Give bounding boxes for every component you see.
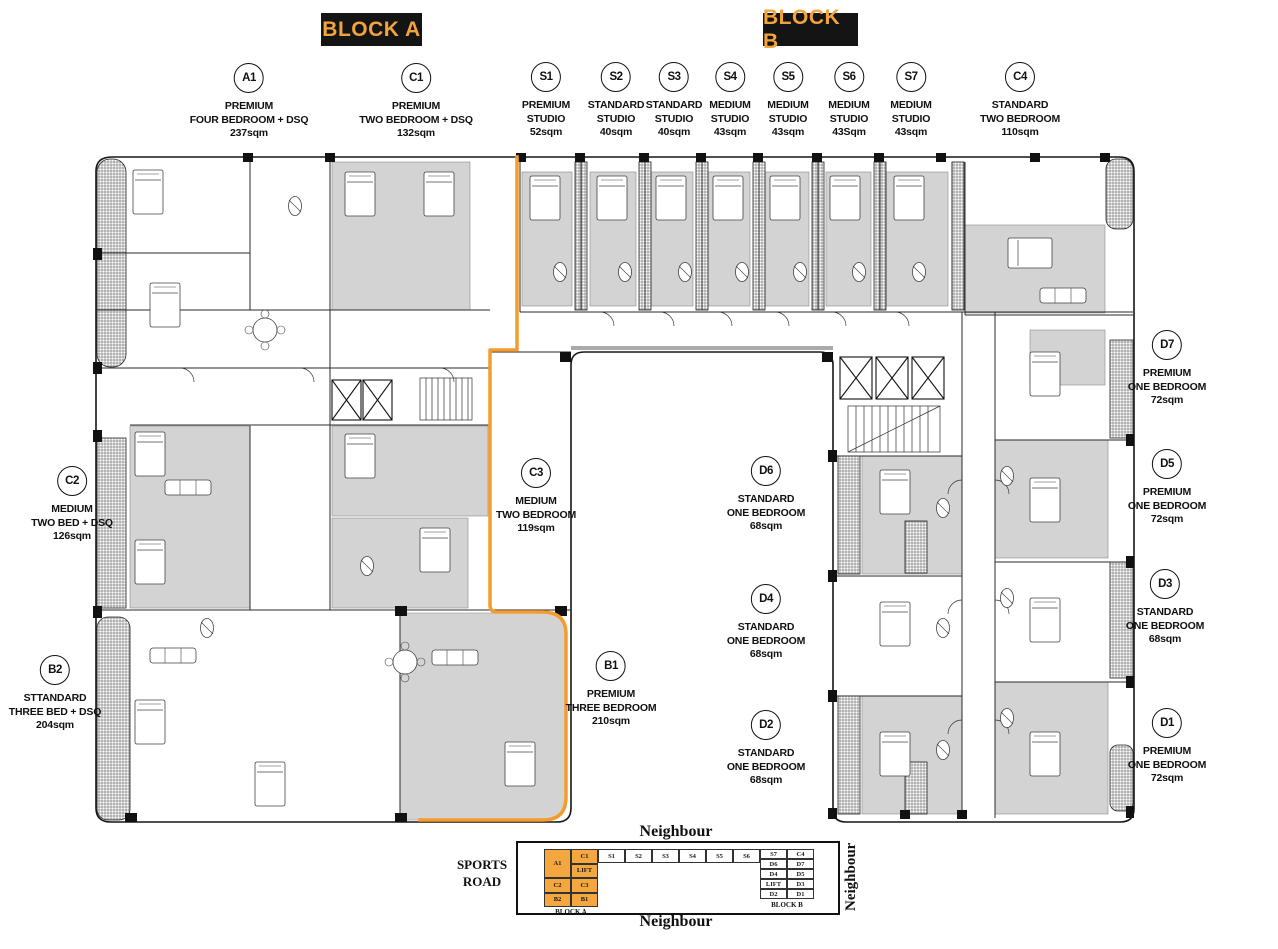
unit-area: 68sqm: [727, 774, 805, 788]
unit-code: B1: [604, 660, 618, 672]
unit-code-badge: S5: [773, 62, 803, 92]
key-cell-lift-a: LIFT: [571, 864, 598, 879]
key-cell-c1: C1: [571, 849, 598, 864]
unit-line: STANDARD: [646, 99, 703, 113]
unit-callout-s3: S3 STANDARDSTUDIO40sqm: [646, 62, 703, 140]
key-plan: A1 C1 LIFT C2 C3 B2 B1 S1 S2 S3 S4 S5 S6…: [516, 841, 840, 915]
unit-code-badge: B1: [596, 651, 626, 681]
unit-callout-c2: C2 MEDIUMTWO BED + DSQ126sqm: [31, 466, 113, 544]
unit-code: D5: [1160, 458, 1174, 470]
unit-line: STUDIO: [890, 113, 931, 127]
unit-description: PREMIUMONE BEDROOM72sqm: [1128, 367, 1206, 408]
unit-line: PREMIUM: [190, 100, 309, 114]
block-b-header: BLOCK B: [763, 13, 858, 46]
unit-area: 43Sqm: [828, 126, 869, 140]
key-cell-b2: B2: [544, 893, 571, 908]
unit-callout-d4: D4 STANDARDONE BEDROOM68sqm: [727, 584, 805, 662]
unit-area: 72sqm: [1128, 394, 1206, 408]
unit-line: TWO BED + DSQ: [31, 517, 113, 531]
unit-line: MEDIUM: [709, 99, 750, 113]
unit-code-badge: B2: [40, 655, 70, 685]
neighbour-label-bottom: Neighbour: [516, 913, 836, 931]
unit-description: PREMIUMFOUR BEDROOM + DSQ237sqm: [190, 100, 309, 141]
key-plan-block-a-grid: A1 C1 LIFT C2 C3 B2 B1: [544, 849, 598, 907]
unit-area: 68sqm: [1126, 633, 1204, 647]
unit-line: ONE BEDROOM: [1128, 381, 1206, 395]
key-cell-d7: D7: [787, 859, 814, 869]
unit-line: MEDIUM: [890, 99, 931, 113]
unit-line: STUDIO: [646, 113, 703, 127]
unit-description: STANDARDONE BEDROOM68sqm: [727, 621, 805, 662]
unit-line: PREMIUM: [1128, 745, 1206, 759]
sports-road-label: SPORTS ROAD: [446, 856, 518, 890]
unit-callout-b1: B1 PREMIUMTHREE BEDROOM210sqm: [566, 651, 657, 729]
unit-line: STANDARD: [727, 747, 805, 761]
key-cell-s6: S6: [733, 849, 760, 863]
unit-description: MEDIUMTWO BEDROOM119sqm: [496, 495, 576, 536]
unit-description: MEDIUMSTUDIO43sqm: [767, 99, 808, 140]
unit-line: STUDIO: [828, 113, 869, 127]
floor-plan-drawing: [0, 0, 1278, 949]
unit-line: PREMIUM: [1128, 367, 1206, 381]
unit-code: S5: [781, 71, 794, 83]
unit-area: 237sqm: [190, 127, 309, 141]
unit-callout-a1: A1 PREMIUMFOUR BEDROOM + DSQ237sqm: [190, 63, 309, 141]
unit-code: D1: [1160, 717, 1174, 729]
key-cell-s3: S3: [652, 849, 679, 863]
unit-description: STANDARDTWO BEDROOM110sqm: [980, 99, 1060, 140]
unit-line: TWO BEDROOM + DSQ: [359, 114, 473, 128]
unit-callout-c3: C3 MEDIUMTWO BEDROOM119sqm: [496, 458, 576, 536]
unit-code: S1: [539, 71, 552, 83]
unit-line: PREMIUM: [1128, 486, 1206, 500]
unit-area: 119sqm: [496, 522, 576, 536]
floor-plan-poster: BLOCK A BLOCK B A1 PREMIUMFOUR BEDROOM +…: [0, 0, 1278, 949]
unit-code: D7: [1160, 339, 1174, 351]
unit-area: 132sqm: [359, 127, 473, 141]
unit-line: STANDARD: [980, 99, 1060, 113]
unit-area: 110sqm: [980, 126, 1060, 140]
unit-code: C2: [65, 475, 79, 487]
unit-description: PREMIUMTWO BEDROOM + DSQ132sqm: [359, 100, 473, 141]
unit-callout-s1: S1 PREMIUMSTUDIO52sqm: [522, 62, 570, 140]
unit-code: C3: [529, 467, 543, 479]
unit-line: ONE BEDROOM: [727, 635, 805, 649]
key-cell-c3: C3: [571, 878, 598, 893]
unit-code-badge: D4: [751, 584, 781, 614]
neighbour-label-top: Neighbour: [516, 823, 836, 841]
unit-line: MEDIUM: [828, 99, 869, 113]
unit-description: STANDARDONE BEDROOM68sqm: [727, 747, 805, 788]
unit-line: ONE BEDROOM: [1128, 500, 1206, 514]
key-cell-s5: S5: [706, 849, 733, 863]
sports-road-line: ROAD: [446, 873, 518, 890]
key-cell-b1: B1: [571, 893, 598, 908]
unit-description: STANDARDSTUDIO40sqm: [588, 99, 645, 140]
unit-line: THREE BEDROOM: [566, 702, 657, 716]
unit-line: STANDARD: [727, 493, 805, 507]
unit-code-badge: S7: [896, 62, 926, 92]
unit-callout-s6: S6 MEDIUMSTUDIO43Sqm: [828, 62, 869, 140]
unit-code: S3: [667, 71, 680, 83]
unit-code: B2: [48, 664, 62, 676]
key-cell-c2: C2: [544, 878, 571, 893]
unit-callout-c1: C1 PREMIUMTWO BEDROOM + DSQ132sqm: [359, 63, 473, 141]
key-cell-d6: D6: [760, 859, 787, 869]
unit-area: 204sqm: [9, 719, 101, 733]
unit-code-badge: C3: [521, 458, 551, 488]
unit-callout-d3: D3 STANDARDONE BEDROOM68sqm: [1126, 569, 1204, 647]
unit-description: MEDIUMSTUDIO43Sqm: [828, 99, 869, 140]
unit-callout-s7: S7 MEDIUMSTUDIO43sqm: [890, 62, 931, 140]
unit-code-badge: C4: [1005, 62, 1035, 92]
unit-callout-b2: B2 STTANDARDTHREE BED + DSQ204sqm: [9, 655, 101, 733]
key-cell-d4: D4: [760, 869, 787, 879]
unit-area: 126sqm: [31, 530, 113, 544]
key-cell-d5: D5: [787, 869, 814, 879]
unit-code-badge: S6: [834, 62, 864, 92]
unit-code-badge: D2: [751, 710, 781, 740]
unit-code-badge: S1: [531, 62, 561, 92]
unit-description: PREMIUMONE BEDROOM72sqm: [1128, 745, 1206, 786]
key-cell-c4: C4: [787, 849, 814, 859]
unit-area: 72sqm: [1128, 772, 1206, 786]
unit-code-badge: C2: [57, 466, 87, 496]
key-cell-s2: S2: [625, 849, 652, 863]
unit-callout-d1: D1 PREMIUMONE BEDROOM72sqm: [1128, 708, 1206, 786]
unit-line: STANDARD: [1126, 606, 1204, 620]
key-cell-d1: D1: [787, 889, 814, 899]
unit-code: A1: [242, 72, 256, 84]
unit-area: 40sqm: [588, 126, 645, 140]
unit-line: STUDIO: [588, 113, 645, 127]
unit-line: ONE BEDROOM: [727, 507, 805, 521]
unit-code-badge: S2: [601, 62, 631, 92]
unit-code: C4: [1013, 71, 1027, 83]
unit-code: S7: [904, 71, 917, 83]
key-cell-a1: A1: [544, 849, 571, 878]
unit-line: MEDIUM: [496, 495, 576, 509]
unit-code-badge: D5: [1152, 449, 1182, 479]
unit-line: STUDIO: [709, 113, 750, 127]
unit-code: D4: [759, 593, 773, 605]
unit-line: FOUR BEDROOM + DSQ: [190, 114, 309, 128]
unit-callout-d6: D6 STANDARDONE BEDROOM68sqm: [727, 456, 805, 534]
unit-description: STANDARDSTUDIO40sqm: [646, 99, 703, 140]
unit-line: TWO BEDROOM: [980, 113, 1060, 127]
unit-callout-s2: S2 STANDARDSTUDIO40sqm: [588, 62, 645, 140]
unit-callout-d7: D7 PREMIUMONE BEDROOM72sqm: [1128, 330, 1206, 408]
block-b-header-label: BLOCK B: [763, 6, 858, 54]
unit-description: STANDARDONE BEDROOM68sqm: [1126, 606, 1204, 647]
unit-code-badge: A1: [234, 63, 264, 93]
key-cell-d2: D2: [760, 889, 787, 899]
key-cell-s1: S1: [598, 849, 625, 863]
unit-line: STUDIO: [767, 113, 808, 127]
unit-description: PREMIUMONE BEDROOM72sqm: [1128, 486, 1206, 527]
unit-line: PREMIUM: [522, 99, 570, 113]
unit-description: STANDARDONE BEDROOM68sqm: [727, 493, 805, 534]
unit-code-badge: S4: [715, 62, 745, 92]
unit-area: 43sqm: [709, 126, 750, 140]
unit-line: MEDIUM: [31, 503, 113, 517]
unit-callout-s5: S5 MEDIUMSTUDIO43sqm: [767, 62, 808, 140]
key-cell-lift-b: LIFT: [760, 879, 787, 889]
unit-area: 72sqm: [1128, 513, 1206, 527]
unit-code: D6: [759, 465, 773, 477]
unit-code: S4: [723, 71, 736, 83]
key-plan-block-b-grid: S7 C4 D6 D7 D4 D5 LIFT D3 D2 D1: [760, 849, 814, 899]
unit-code: S2: [609, 71, 622, 83]
unit-description: MEDIUMTWO BED + DSQ126sqm: [31, 503, 113, 544]
key-cell-s4: S4: [679, 849, 706, 863]
unit-code: D2: [759, 719, 773, 731]
unit-line: TWO BEDROOM: [496, 509, 576, 523]
unit-code-badge: D3: [1150, 569, 1180, 599]
unit-code-badge: C1: [401, 63, 431, 93]
key-cell-d3: D3: [787, 879, 814, 889]
unit-area: 43sqm: [890, 126, 931, 140]
unit-area: 68sqm: [727, 520, 805, 534]
unit-code-badge: S3: [659, 62, 689, 92]
unit-description: PREMIUMSTUDIO52sqm: [522, 99, 570, 140]
key-plan-studio-row: S1 S2 S3 S4 S5 S6: [598, 849, 760, 863]
unit-line: STTANDARD: [9, 692, 101, 706]
unit-callout-d2: D2 STANDARDONE BEDROOM68sqm: [727, 710, 805, 788]
unit-description: MEDIUMSTUDIO43sqm: [890, 99, 931, 140]
unit-area: 68sqm: [727, 648, 805, 662]
unit-line: MEDIUM: [767, 99, 808, 113]
unit-callout-d5: D5 PREMIUMONE BEDROOM72sqm: [1128, 449, 1206, 527]
unit-line: STANDARD: [727, 621, 805, 635]
unit-description: PREMIUMTHREE BEDROOM210sqm: [566, 688, 657, 729]
unit-callout-c4: C4 STANDARDTWO BEDROOM110sqm: [980, 62, 1060, 140]
unit-code: C1: [409, 72, 423, 84]
key-cell-s7: S7: [760, 849, 787, 859]
sports-road-line: SPORTS: [446, 856, 518, 873]
unit-line: THREE BED + DSQ: [9, 706, 101, 720]
unit-callout-s4: S4 MEDIUMSTUDIO43sqm: [709, 62, 750, 140]
block-a-header: BLOCK A: [321, 13, 422, 46]
unit-line: ONE BEDROOM: [1126, 620, 1204, 634]
unit-description: STTANDARDTHREE BED + DSQ204sqm: [9, 692, 101, 733]
unit-area: 40sqm: [646, 126, 703, 140]
unit-line: PREMIUM: [359, 100, 473, 114]
unit-code-badge: D6: [751, 456, 781, 486]
unit-area: 210sqm: [566, 715, 657, 729]
unit-code-badge: D7: [1152, 330, 1182, 360]
unit-line: PREMIUM: [566, 688, 657, 702]
unit-code: S6: [842, 71, 855, 83]
unit-code-badge: D1: [1152, 708, 1182, 738]
unit-area: 43sqm: [767, 126, 808, 140]
unit-line: STUDIO: [522, 113, 570, 127]
unit-line: ONE BEDROOM: [1128, 759, 1206, 773]
unit-line: STANDARD: [588, 99, 645, 113]
neighbour-label-right: Neighbour: [843, 842, 860, 912]
unit-description: MEDIUMSTUDIO43sqm: [709, 99, 750, 140]
unit-area: 52sqm: [522, 126, 570, 140]
block-a-header-label: BLOCK A: [322, 18, 420, 42]
unit-line: ONE BEDROOM: [727, 761, 805, 775]
unit-code: D3: [1158, 578, 1172, 590]
key-plan-block-b-caption: BLOCK B: [750, 901, 824, 909]
